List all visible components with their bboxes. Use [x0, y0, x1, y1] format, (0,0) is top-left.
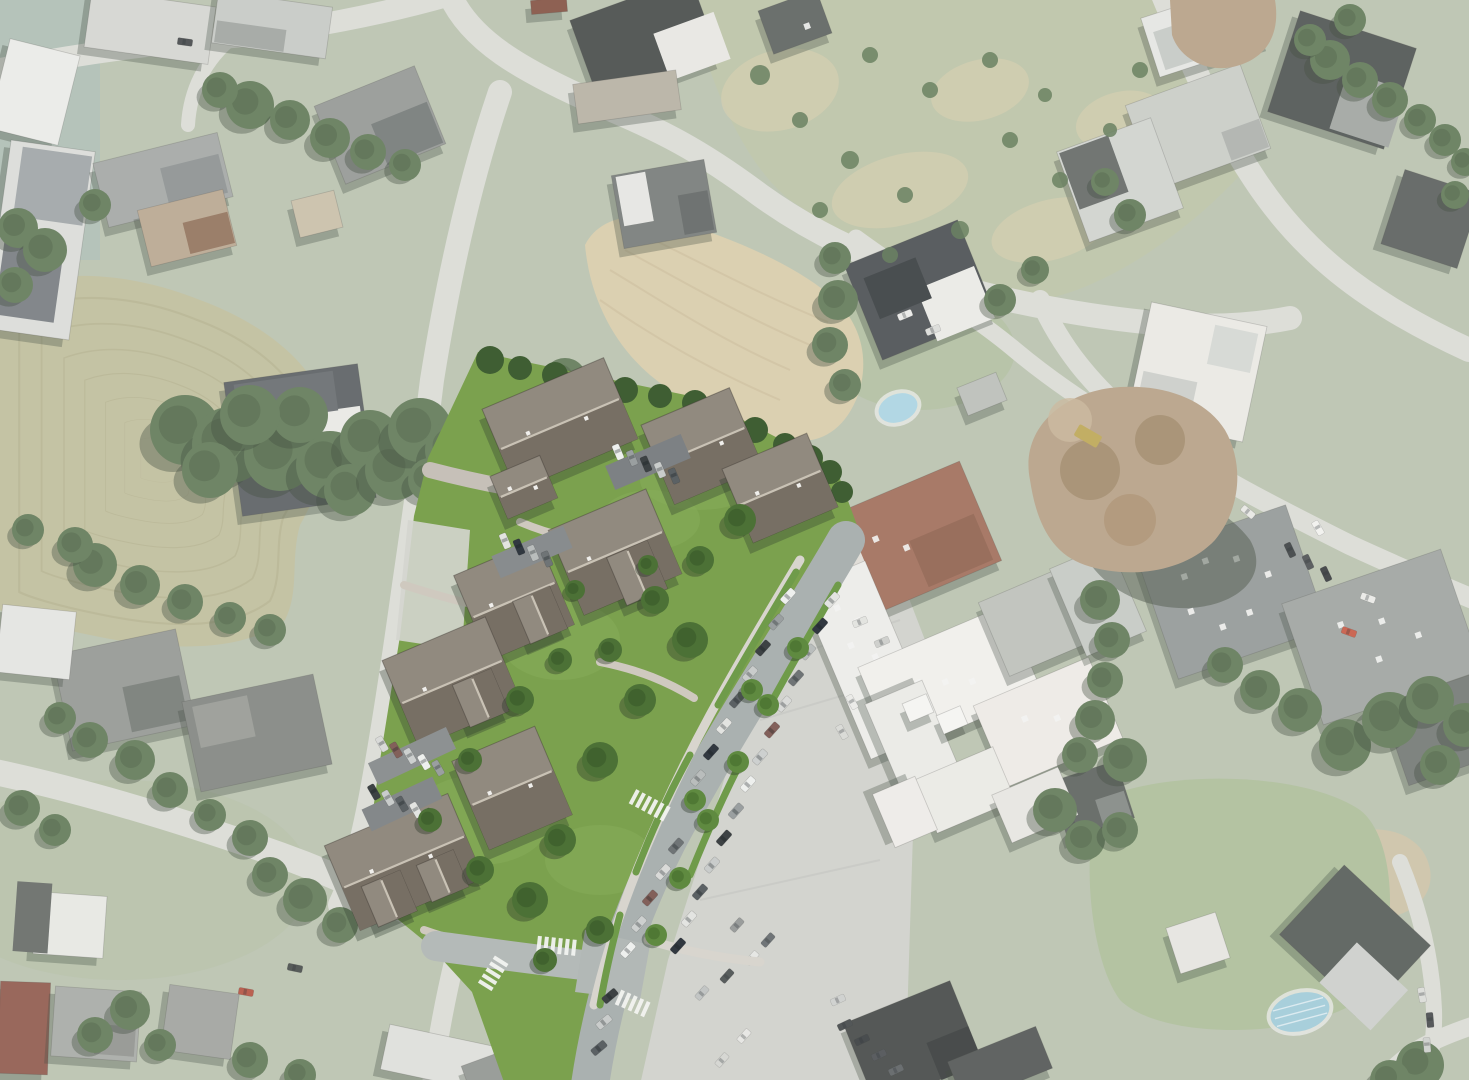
aerial-site-plan-image [0, 0, 1469, 1080]
tree-crown [587, 747, 607, 767]
tree-crown [461, 752, 474, 765]
tree-crown [590, 920, 605, 935]
tree-crown [677, 627, 697, 647]
tree-crown [548, 829, 566, 847]
tree-crown [744, 682, 756, 694]
tree-crown [672, 870, 684, 882]
tree-crown [645, 590, 660, 605]
tree-crown [730, 754, 742, 766]
hedge-bush [648, 384, 672, 408]
tree-crown [687, 792, 699, 804]
tree-crown [728, 509, 746, 527]
tree-crown [648, 927, 660, 939]
tree-crown [700, 812, 712, 824]
tree-crown [421, 812, 434, 825]
tree-crown [551, 652, 564, 665]
tree-crown [641, 558, 652, 569]
aerial-photo [0, 0, 1469, 1080]
hedge-bush [508, 356, 532, 380]
tree-crown [690, 550, 705, 565]
tree-crown [568, 583, 579, 594]
tree-crown [601, 642, 614, 655]
tree-crown [517, 887, 537, 907]
tree-crown [628, 689, 646, 707]
hedge-bush [476, 346, 504, 374]
tree-crown [760, 697, 772, 709]
tree-crown [536, 952, 549, 965]
tree-crown [470, 860, 485, 875]
tree-crown [790, 640, 802, 652]
tree-crown [510, 690, 525, 705]
